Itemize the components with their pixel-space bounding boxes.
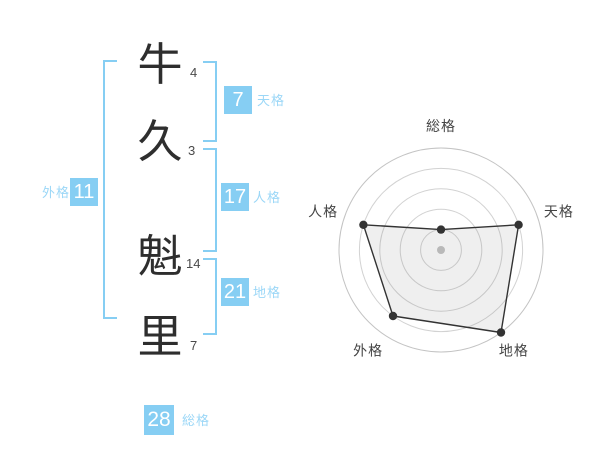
soukaku-value-badge: 28 bbox=[144, 405, 174, 435]
chikaku-label: 地格 bbox=[253, 285, 281, 300]
tenkaku-label: 天格 bbox=[257, 93, 285, 108]
radar-chart: 総格天格地格外格人格 bbox=[300, 95, 600, 395]
radar-data-point-3 bbox=[389, 312, 397, 320]
radar-data-polygon bbox=[363, 225, 518, 333]
radar-axis-label-0: 総格 bbox=[426, 118, 456, 134]
jinkaku-value-badge: 17 bbox=[221, 183, 249, 211]
name-char-3: 魁 bbox=[136, 234, 184, 279]
soukaku-label: 総格 bbox=[182, 413, 210, 428]
radar-axis-label-4: 人格 bbox=[308, 204, 338, 220]
name-char-2: 久 bbox=[136, 119, 184, 164]
name-analysis-page: 牛 久 魁 里 4 3 14 7 7 天格 17 人格 21 地格 外格 11 … bbox=[0, 0, 600, 470]
radar-data-point-2 bbox=[497, 328, 505, 336]
jinkaku-label: 人格 bbox=[253, 190, 281, 205]
radar-axis-label-3: 外格 bbox=[353, 342, 383, 358]
radar-center-dot bbox=[437, 246, 445, 254]
stroke-count-4: 7 bbox=[190, 339, 197, 352]
name-char-4: 里 bbox=[136, 314, 184, 359]
tenkaku-bracket bbox=[203, 61, 217, 142]
radar-data-point-4 bbox=[359, 221, 367, 229]
radar-data-point-0 bbox=[437, 225, 445, 233]
stroke-count-2: 3 bbox=[188, 144, 195, 157]
radar-axis-label-1: 天格 bbox=[544, 204, 574, 220]
gaikaku-label: 外格 bbox=[42, 185, 70, 200]
stroke-count-3: 14 bbox=[186, 257, 200, 270]
chikaku-value-badge: 21 bbox=[221, 278, 249, 306]
jinkaku-bracket bbox=[203, 148, 217, 252]
tenkaku-value-badge: 7 bbox=[224, 86, 252, 114]
chikaku-bracket bbox=[203, 258, 217, 335]
radar-axis-label-2: 地格 bbox=[499, 342, 529, 358]
gaikaku-value-badge: 11 bbox=[70, 178, 98, 206]
radar-data-point-1 bbox=[514, 221, 522, 229]
name-char-1: 牛 bbox=[136, 42, 184, 87]
stroke-count-1: 4 bbox=[190, 66, 197, 79]
gaikaku-bracket bbox=[103, 60, 117, 319]
